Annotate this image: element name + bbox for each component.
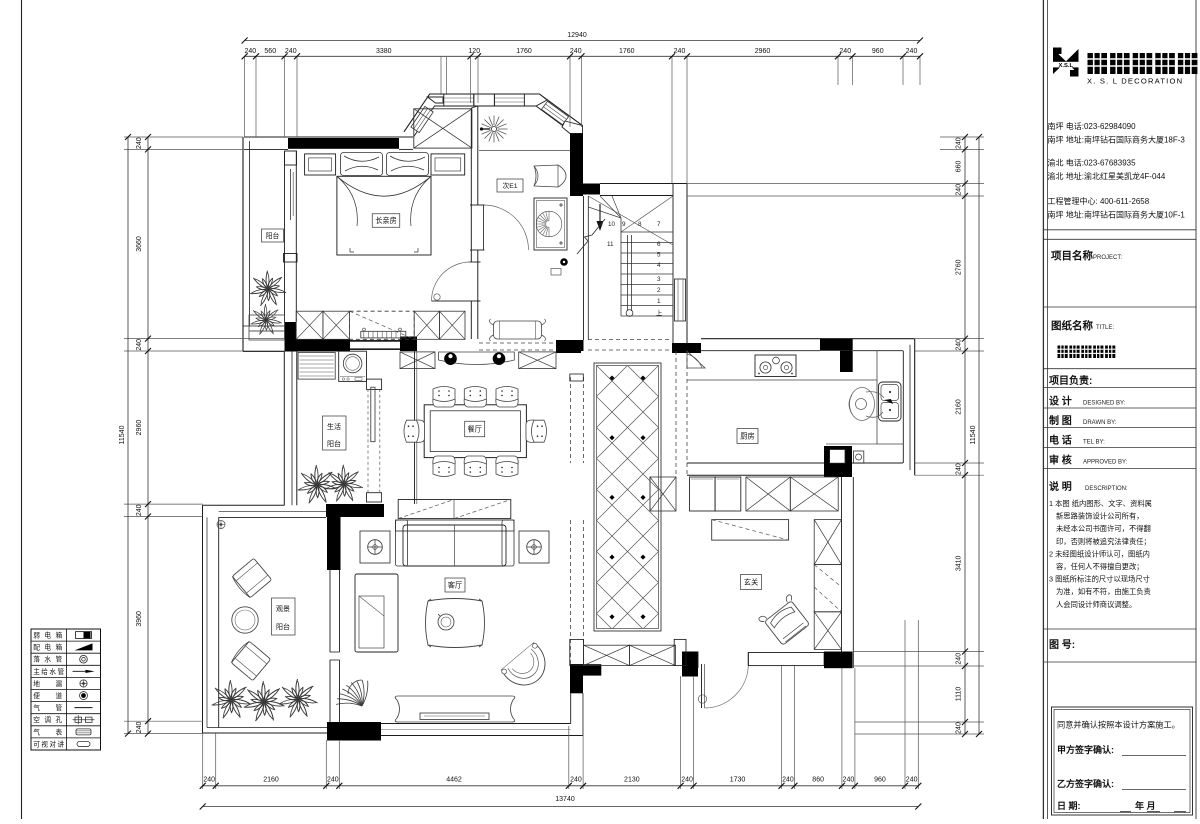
svg-text:制 图: 制 图 <box>1049 414 1072 427</box>
svg-text:12940: 12940 <box>567 32 587 39</box>
svg-text:560: 560 <box>264 48 276 55</box>
svg-text:11540: 11540 <box>119 425 126 444</box>
svg-text:厨房: 厨房 <box>740 432 754 441</box>
svg-text:印，否则将被追究法律责任；: 印，否则将被追究法律责任； <box>1056 537 1151 546</box>
svg-text:240: 240 <box>956 463 963 475</box>
svg-text:4462: 4462 <box>446 777 462 784</box>
svg-text:观景: 观景 <box>276 605 290 613</box>
svg-text:渝北 电话:023-67683935: 渝北 电话:023-67683935 <box>1048 158 1137 168</box>
svg-text:2 未经图纸设计师认可，图纸内: 2 未经图纸设计师认可，图纸内 <box>1049 549 1150 558</box>
svg-text:甲方签字确认:: 甲方签字确认: <box>1057 744 1114 755</box>
svg-text:1 本图 纸内图形、文字、资料属: 1 本图 纸内图形、文字、资料属 <box>1049 499 1152 508</box>
svg-text:乙方签字确认:: 乙方签字确认: <box>1057 778 1114 789</box>
svg-text:240: 240 <box>570 777 582 784</box>
svg-text:240: 240 <box>956 653 963 665</box>
svg-text:2130: 2130 <box>624 777 640 784</box>
svg-text:660: 660 <box>956 161 963 173</box>
svg-text:240: 240 <box>782 777 794 784</box>
svg-text:10: 10 <box>608 221 616 228</box>
svg-text:主给水管: 主给水管 <box>33 667 64 676</box>
svg-text:项目负责:: 项目负责: <box>1049 374 1092 387</box>
svg-text:240: 240 <box>203 777 215 784</box>
svg-text:3410: 3410 <box>956 555 963 571</box>
svg-text:7: 7 <box>657 221 661 228</box>
svg-text:2760: 2760 <box>956 259 963 275</box>
svg-text:9: 9 <box>622 221 626 228</box>
svg-text:2: 2 <box>657 287 661 294</box>
svg-text:说 明: 说 明 <box>1049 480 1072 493</box>
svg-text:审 核: 审 核 <box>1049 454 1072 467</box>
svg-text:240: 240 <box>136 721 143 733</box>
svg-text:5: 5 <box>657 252 661 259</box>
svg-text:生活: 生活 <box>327 422 341 431</box>
svg-text:240: 240 <box>136 137 143 149</box>
svg-text:渝北 地址:渝北红星美凯龙4F-044: 渝北 地址:渝北红星美凯龙4F-044 <box>1048 171 1166 181</box>
svg-text:南坪 地址:南坪钻石国际商务大厦10F-1: 南坪 地址:南坪钻石国际商务大厦10F-1 <box>1048 210 1186 220</box>
svg-text:13740: 13740 <box>555 796 575 803</box>
svg-text:人会同设计师商议调整。: 人会同设计师商议调整。 <box>1056 600 1136 609</box>
svg-text:240: 240 <box>327 777 339 784</box>
svg-text:11540: 11540 <box>970 425 977 444</box>
svg-text:阳台: 阳台 <box>327 439 341 448</box>
svg-text:240: 240 <box>956 339 963 351</box>
svg-text:240: 240 <box>570 48 582 55</box>
svg-text:阳台: 阳台 <box>266 231 280 240</box>
svg-text:同意并确认按照本设计方案施工。: 同意并确认按照本设计方案施工。 <box>1057 720 1180 730</box>
svg-text:DESCRIPTION:: DESCRIPTION: <box>1085 486 1128 492</box>
svg-text:8: 8 <box>638 221 642 228</box>
svg-text:6: 6 <box>657 241 661 248</box>
svg-text:容，任何人不得擅自更改；: 容，任何人不得擅自更改； <box>1056 562 1144 571</box>
svg-text:240: 240 <box>136 504 143 516</box>
svg-text:240: 240 <box>681 777 693 784</box>
svg-text:阳台: 阳台 <box>276 622 290 631</box>
svg-text:弱电箱: 弱电箱 <box>33 630 62 639</box>
svg-text:120: 120 <box>468 48 480 55</box>
svg-text:240: 240 <box>906 48 918 55</box>
svg-text:图纸名称: 图纸名称 <box>1051 319 1093 332</box>
svg-text:图 号:: 图 号: <box>1049 639 1075 651</box>
svg-text:上: 上 <box>656 308 662 317</box>
svg-text:240: 240 <box>956 137 963 149</box>
svg-text:APPROVED BY:: APPROVED BY: <box>1083 460 1128 466</box>
svg-text:X.S.L: X.S.L <box>1059 63 1074 69</box>
svg-text:客厅: 客厅 <box>448 581 462 590</box>
svg-text:DESIGNED BY:: DESIGNED BY: <box>1083 401 1126 407</box>
svg-text:3960: 3960 <box>136 611 143 627</box>
svg-text:960: 960 <box>874 777 886 784</box>
svg-text:1: 1 <box>657 298 661 305</box>
svg-text:240: 240 <box>956 722 963 734</box>
svg-text:长亲房: 长亲房 <box>375 216 397 225</box>
svg-text:240: 240 <box>843 777 855 784</box>
svg-text:工程管理中心: 400-611-2658: 工程管理中心: 400-611-2658 <box>1048 196 1150 206</box>
svg-text:年 月: 年 月 <box>1135 800 1156 811</box>
svg-text:新思路装饰设计公司所有，: 新思路装饰设计公司所有， <box>1056 512 1144 521</box>
svg-text:空调孔: 空调孔 <box>33 715 62 724</box>
svg-text:3 图纸所标注的尺寸以现场尺寸: 3 图纸所标注的尺寸以现场尺寸 <box>1049 575 1150 584</box>
svg-text:配电箱: 配电箱 <box>33 643 62 652</box>
svg-text:3660: 3660 <box>136 236 143 252</box>
svg-text:TEL BY:: TEL BY: <box>1083 440 1105 446</box>
svg-text:南坪 电话:023-62984090: 南坪 电话:023-62984090 <box>1048 121 1137 131</box>
svg-text:2960: 2960 <box>136 420 143 436</box>
svg-text:240: 240 <box>674 48 686 55</box>
svg-text:未经本公司书面许可，不得翻: 未经本公司书面许可，不得翻 <box>1056 524 1151 533</box>
svg-text:PROJECT:: PROJECT: <box>1093 255 1122 261</box>
svg-text:240: 240 <box>136 339 143 351</box>
svg-text:玄关: 玄关 <box>744 578 758 587</box>
svg-text:960: 960 <box>872 48 884 55</box>
svg-text:1760: 1760 <box>516 48 532 55</box>
svg-text:可视对讲: 可视对讲 <box>33 739 64 748</box>
svg-text:1110: 1110 <box>956 687 963 702</box>
svg-text:电 话: 电 话 <box>1049 434 1072 447</box>
svg-text:3380: 3380 <box>376 48 392 55</box>
svg-text:4: 4 <box>657 262 661 269</box>
svg-text:11: 11 <box>607 241 614 248</box>
svg-text:次E1: 次E1 <box>502 181 517 190</box>
svg-text:240: 240 <box>956 184 963 196</box>
svg-text:2160: 2160 <box>956 399 963 415</box>
svg-text:1730: 1730 <box>730 777 746 784</box>
svg-text:2160: 2160 <box>263 777 279 784</box>
svg-text:DRAWN BY:: DRAWN BY: <box>1083 420 1117 426</box>
svg-text:2960: 2960 <box>755 48 771 55</box>
svg-text:餐厅: 餐厅 <box>468 425 482 434</box>
svg-text:TITLE:: TITLE: <box>1096 325 1114 331</box>
svg-text:1760: 1760 <box>619 48 635 55</box>
svg-text:860: 860 <box>812 777 824 784</box>
svg-text:落水管: 落水管 <box>33 655 62 664</box>
svg-text:X. S. L DECORATION: X. S. L DECORATION <box>1087 77 1183 86</box>
svg-text:3: 3 <box>657 276 661 283</box>
svg-text:为准，如有不符，由施工负责: 为准，如有不符，由施工负责 <box>1056 587 1151 596</box>
svg-text:设 计: 设 计 <box>1049 395 1072 408</box>
svg-text:日 期:: 日 期: <box>1057 800 1081 811</box>
svg-text:240: 240 <box>244 48 256 55</box>
svg-text:南坪 地址:南坪钻石国际商务大厦18F-3: 南坪 地址:南坪钻石国际商务大厦18F-3 <box>1048 135 1186 145</box>
svg-text:项目名称: 项目名称 <box>1051 249 1093 262</box>
